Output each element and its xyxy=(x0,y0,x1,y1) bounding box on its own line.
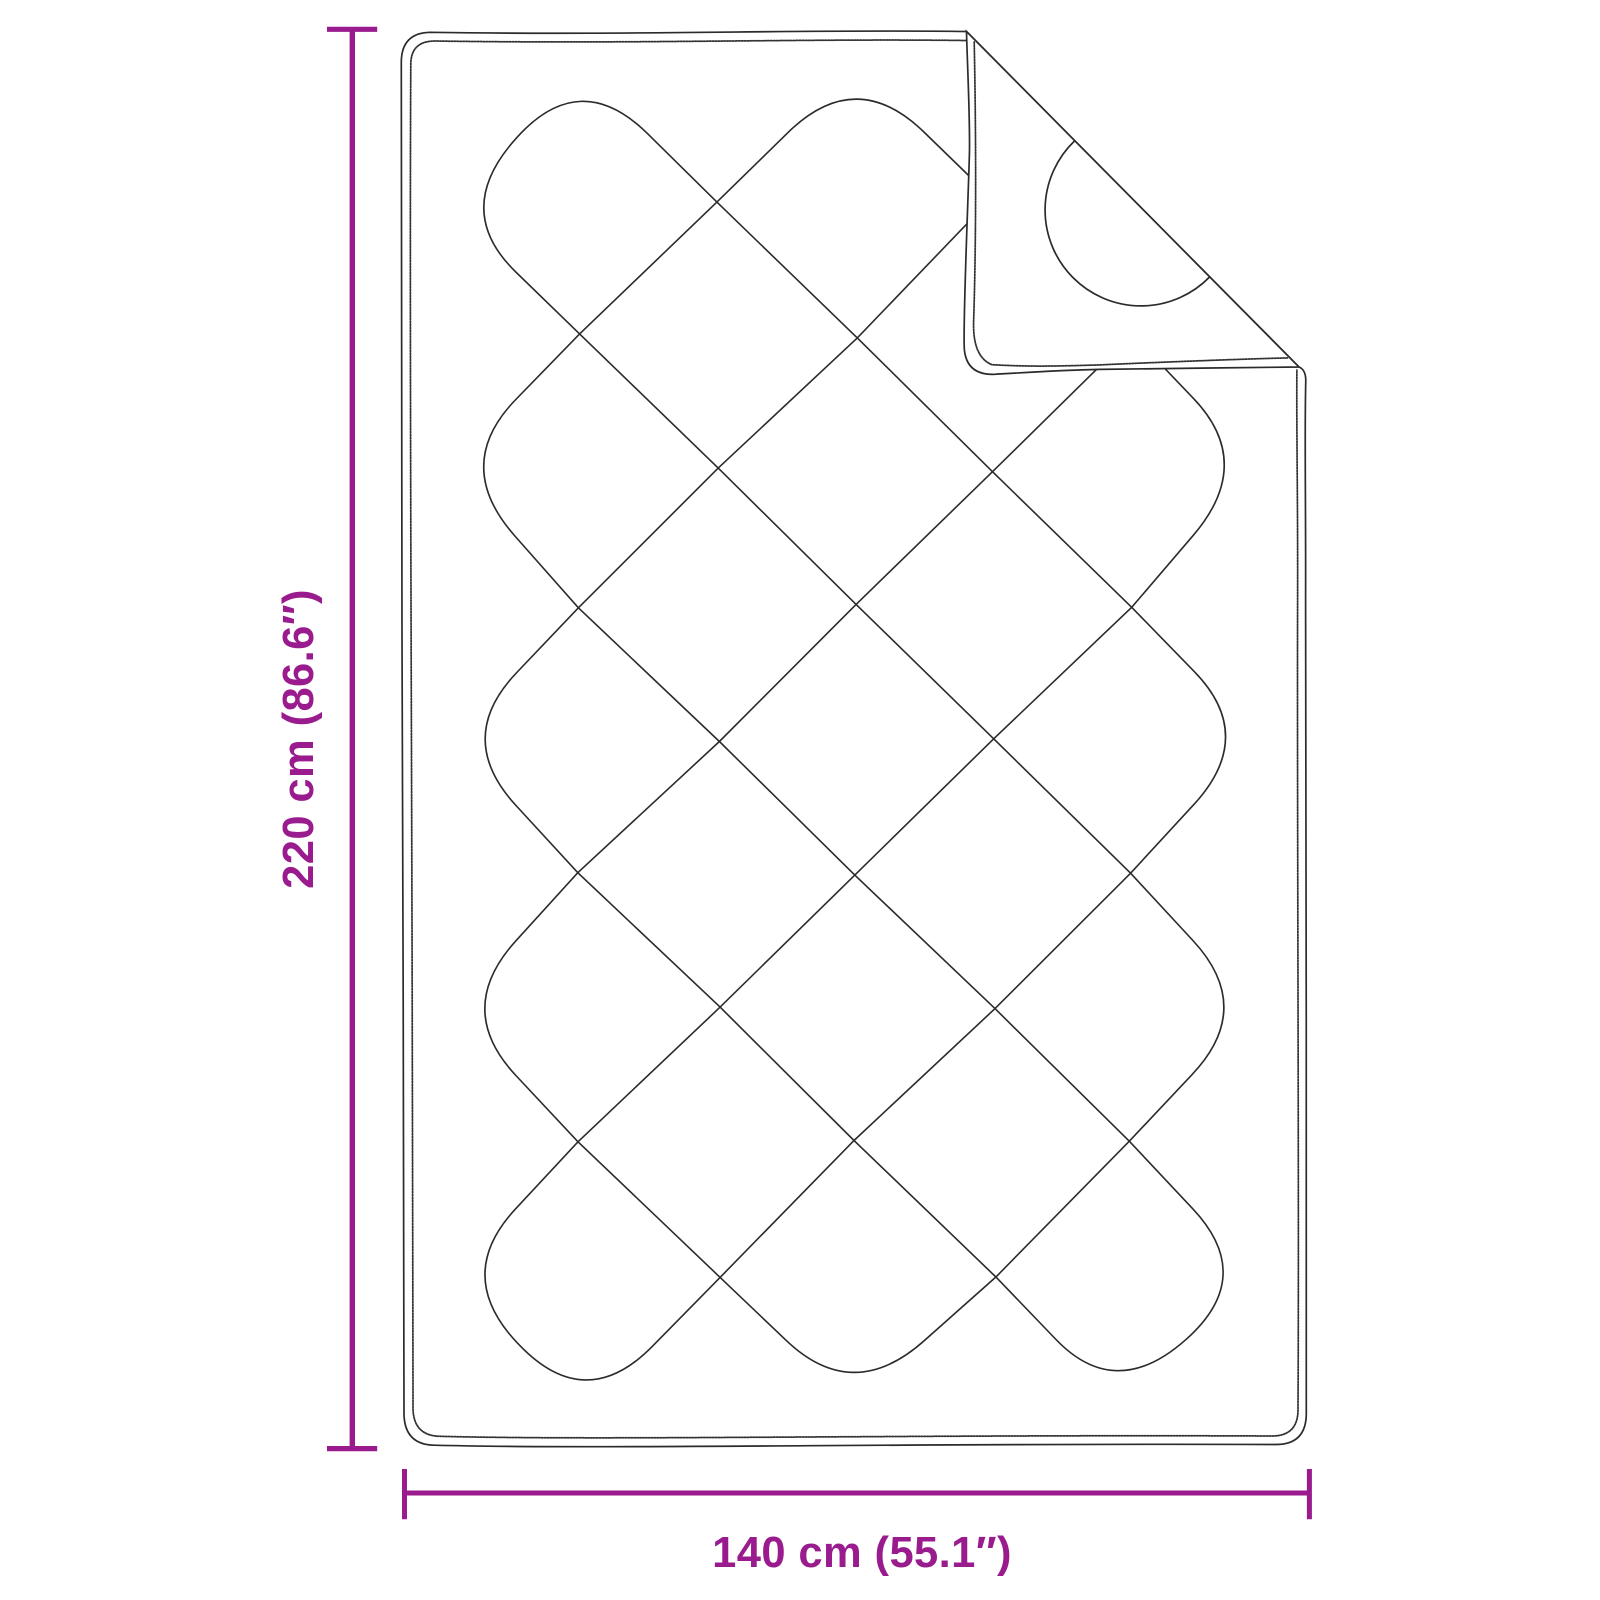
svg-text:220 cm (86.6″): 220 cm (86.6″) xyxy=(275,589,323,889)
svg-text:140 cm (55.1″): 140 cm (55.1″) xyxy=(712,1529,1012,1577)
